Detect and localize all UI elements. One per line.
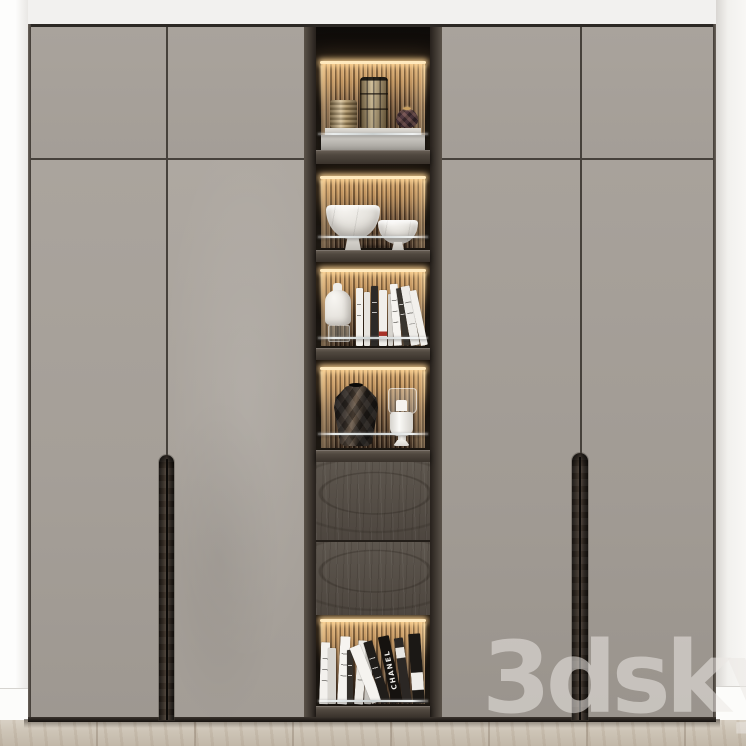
bowl-shadow <box>324 244 420 250</box>
book-spine <box>328 648 336 704</box>
led-light-strip <box>320 61 426 64</box>
led-side-glow <box>423 623 426 671</box>
left-door-handle <box>159 455 174 720</box>
cabinet-left-edge <box>28 24 31 722</box>
shelf-board <box>316 348 430 360</box>
door-panel-upper-right-2 <box>582 27 713 158</box>
glass-front-rail <box>318 700 428 702</box>
candle <box>396 400 407 411</box>
door-seam-left-horizontal <box>31 158 304 160</box>
right-wall <box>716 0 746 722</box>
glass-front-rail <box>318 236 428 238</box>
left-wall <box>0 0 28 722</box>
led-light-strip <box>320 269 426 272</box>
led-side-glow <box>320 65 323 121</box>
wardrobe-cabinet: CHANEL <box>28 24 716 722</box>
cabinet-right-edge <box>713 24 716 722</box>
handle-groove <box>166 459 168 720</box>
led-light-strip <box>320 176 426 179</box>
glass-front-rail <box>318 133 428 135</box>
door-seam-right-horizontal <box>442 158 713 160</box>
door-panel-lower-left-1 <box>31 160 166 717</box>
tall-brass-canister <box>360 77 388 128</box>
dark-faceted-vase <box>334 384 378 446</box>
shelf-board <box>316 450 430 462</box>
candle-holder-stem <box>398 436 406 440</box>
bottle-vase-glass-base <box>328 325 350 342</box>
led-side-glow <box>423 273 426 319</box>
bottom-board <box>316 706 430 717</box>
faceted-mini-vase <box>396 109 418 128</box>
large-bowl-foot <box>345 237 361 250</box>
led-side-glow <box>423 180 426 224</box>
display-column: CHANEL <box>316 27 430 717</box>
led-light-strip <box>320 367 426 370</box>
glass-front-rail <box>318 433 428 435</box>
door-panel-upper-left-2 <box>168 27 304 158</box>
drawer-front-upper <box>316 462 430 540</box>
compartment-top-shelf <box>316 27 430 150</box>
led-side-glow <box>423 65 426 121</box>
3dsky-watermark: 3dsky <box>482 629 746 728</box>
scene: CHANEL 3dsky <box>0 0 746 746</box>
door-panel-upper-right-1 <box>442 27 580 158</box>
faceted-vase-mouth <box>349 383 363 387</box>
led-light-strip <box>320 619 426 622</box>
shelf-board <box>316 150 430 164</box>
drawer-front-lower <box>316 542 430 615</box>
compartment-bottom-books: CHANEL <box>316 615 430 706</box>
cabinet-top-edge <box>28 24 716 27</box>
white-bottle-vase <box>325 290 351 325</box>
left-baseboard <box>0 688 28 723</box>
book-spine <box>347 650 353 704</box>
stone-tray-base <box>321 135 425 150</box>
shelf-board <box>316 250 430 262</box>
mini-vase-rim <box>403 107 411 110</box>
ribbed-canister <box>330 100 357 128</box>
compartment-bowls <box>316 164 430 250</box>
door-panel-lower-left-2 <box>168 160 304 717</box>
led-side-glow <box>320 371 323 419</box>
small-bowl-foot <box>392 242 404 250</box>
door-panel-upper-left-1 <box>31 27 166 158</box>
led-side-glow <box>320 273 323 319</box>
compartment-vases <box>316 360 430 450</box>
glass-front-rail <box>318 337 428 339</box>
led-side-glow <box>423 371 426 419</box>
compartment-books <box>316 262 430 348</box>
led-side-glow <box>320 180 323 224</box>
